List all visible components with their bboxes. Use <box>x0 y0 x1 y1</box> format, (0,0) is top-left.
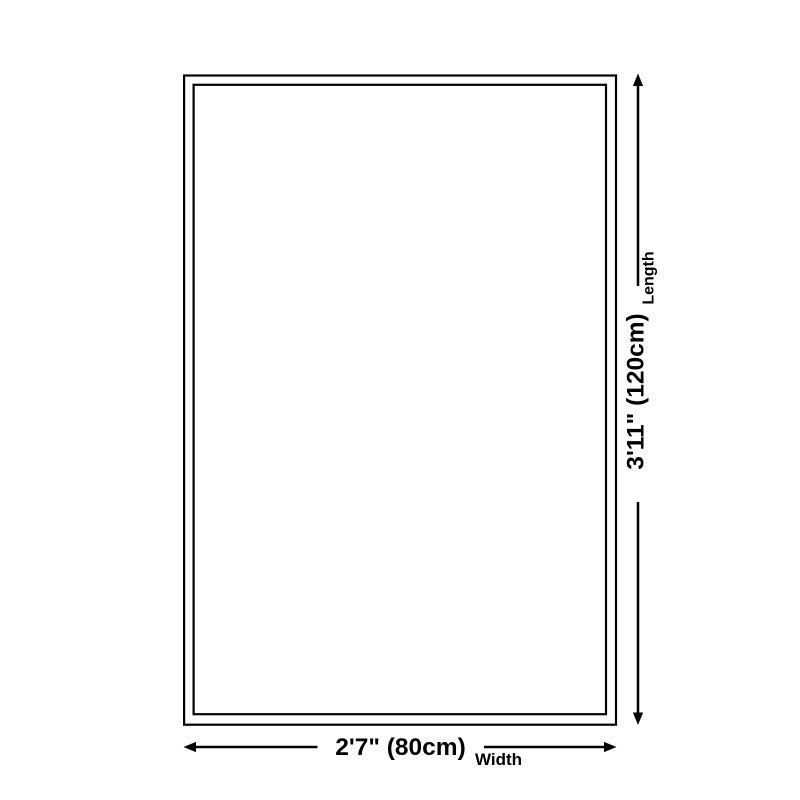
svg-text:2'7" (80cm): 2'7" (80cm) <box>335 734 465 761</box>
svg-text:3'11" (120cm): 3'11" (120cm) <box>623 313 650 469</box>
svg-text:Width: Width <box>475 750 522 769</box>
svg-text:Length: Length <box>641 251 658 304</box>
